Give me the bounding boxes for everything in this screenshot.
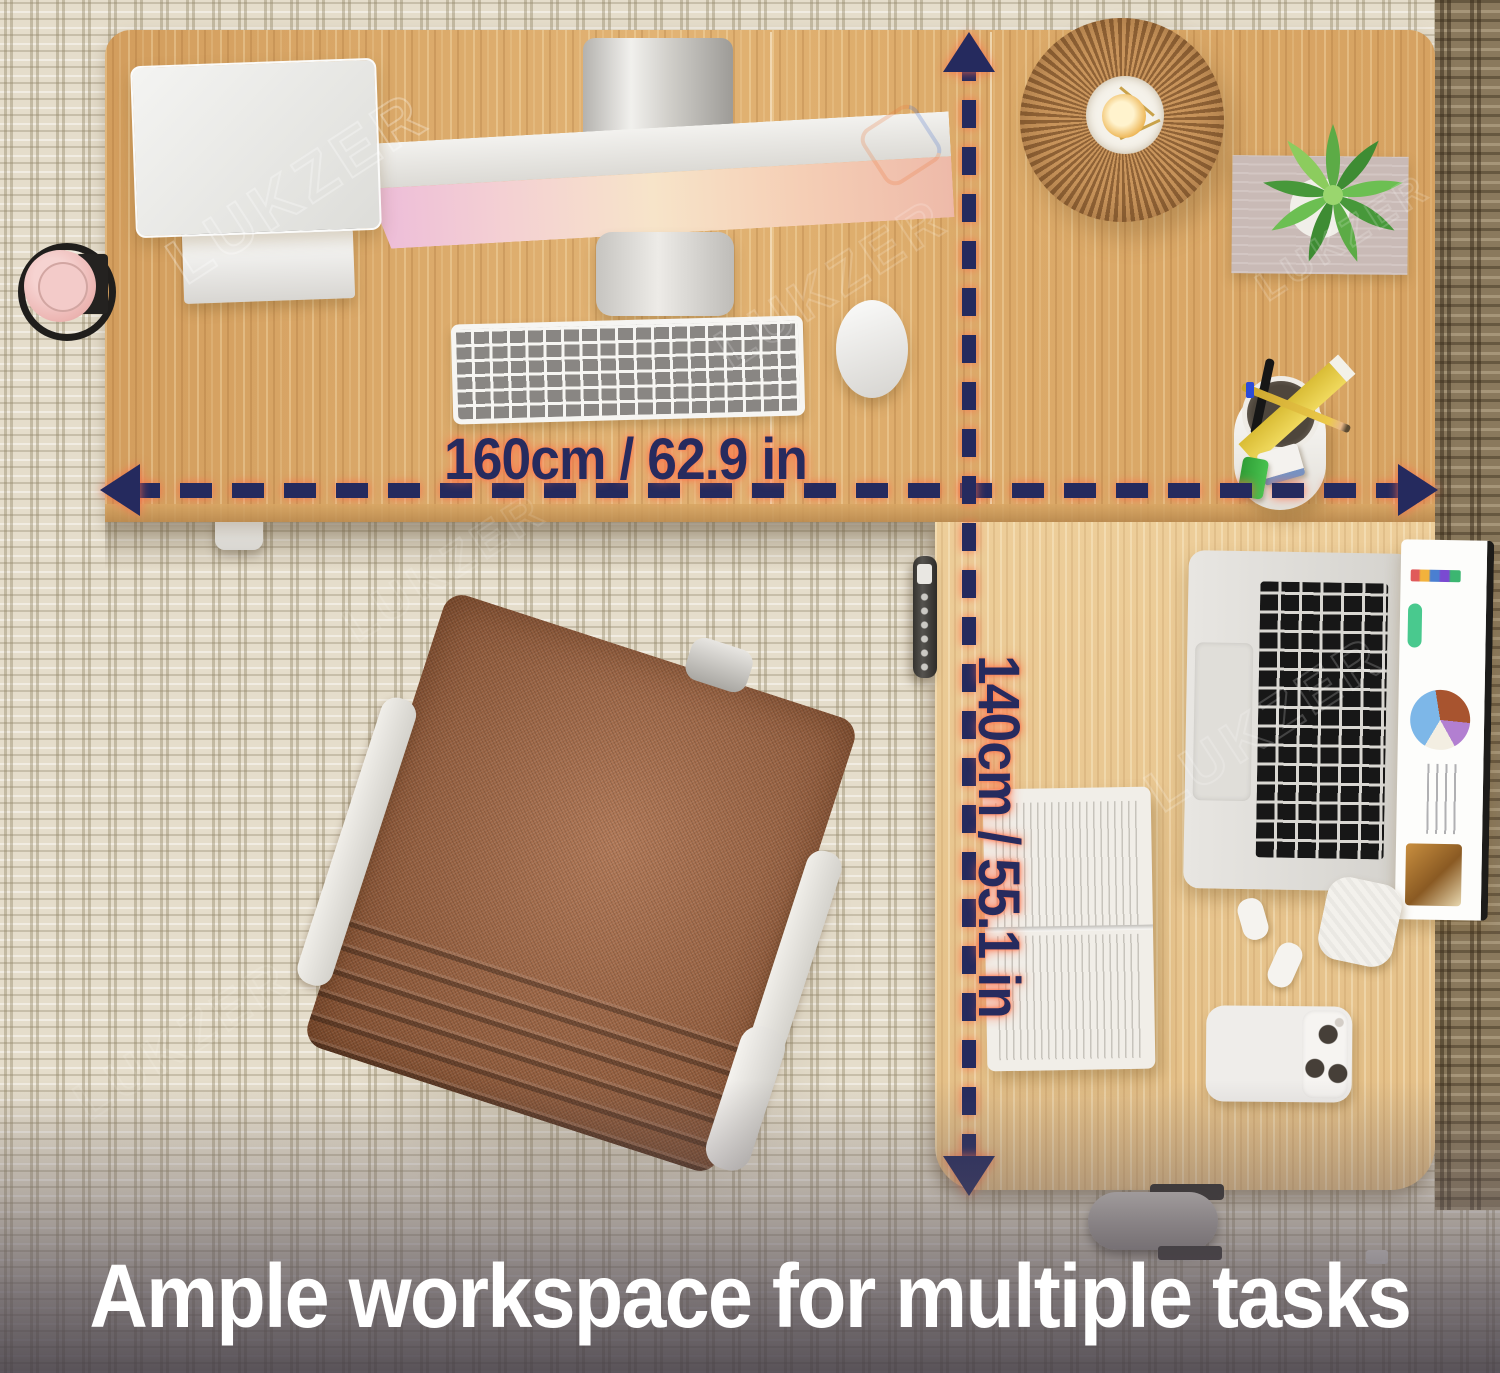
screen-green-badge xyxy=(1407,603,1422,647)
height-controller xyxy=(913,556,937,678)
desk-front-edge xyxy=(105,504,1435,522)
lamp-bulb xyxy=(1102,94,1146,138)
controller-display xyxy=(917,564,932,584)
screen-chart-bars xyxy=(1411,569,1461,582)
screen-text-lines xyxy=(1426,764,1461,835)
depth-dimension-label: 140cm / 55.1 in xyxy=(965,655,1032,1018)
caption-text: Ample workspace for multiple tasks xyxy=(90,1246,1411,1349)
pen-clip xyxy=(1246,382,1254,398)
controller-buttons xyxy=(917,590,932,672)
arrow-up-icon xyxy=(943,32,995,72)
monitor-stand-base xyxy=(596,232,734,316)
screen-pie-chart xyxy=(1410,689,1471,750)
width-dimension-label: 160cm / 62.9 in xyxy=(444,426,807,493)
screen-photo-block xyxy=(1405,843,1462,906)
desk-leg xyxy=(215,518,263,550)
arrow-right-icon xyxy=(1398,464,1438,516)
laptop-screen xyxy=(1395,539,1495,921)
mouse xyxy=(836,300,908,398)
product-image: LUKZER LUKZER LUKZER LUKZER LUKZER LUKZE… xyxy=(0,0,1500,1373)
caption: Ample workspace for multiple tasks xyxy=(0,1246,1500,1349)
desk-seam xyxy=(990,32,992,504)
bottle-cap xyxy=(38,262,88,312)
arrow-left-icon xyxy=(100,464,140,516)
